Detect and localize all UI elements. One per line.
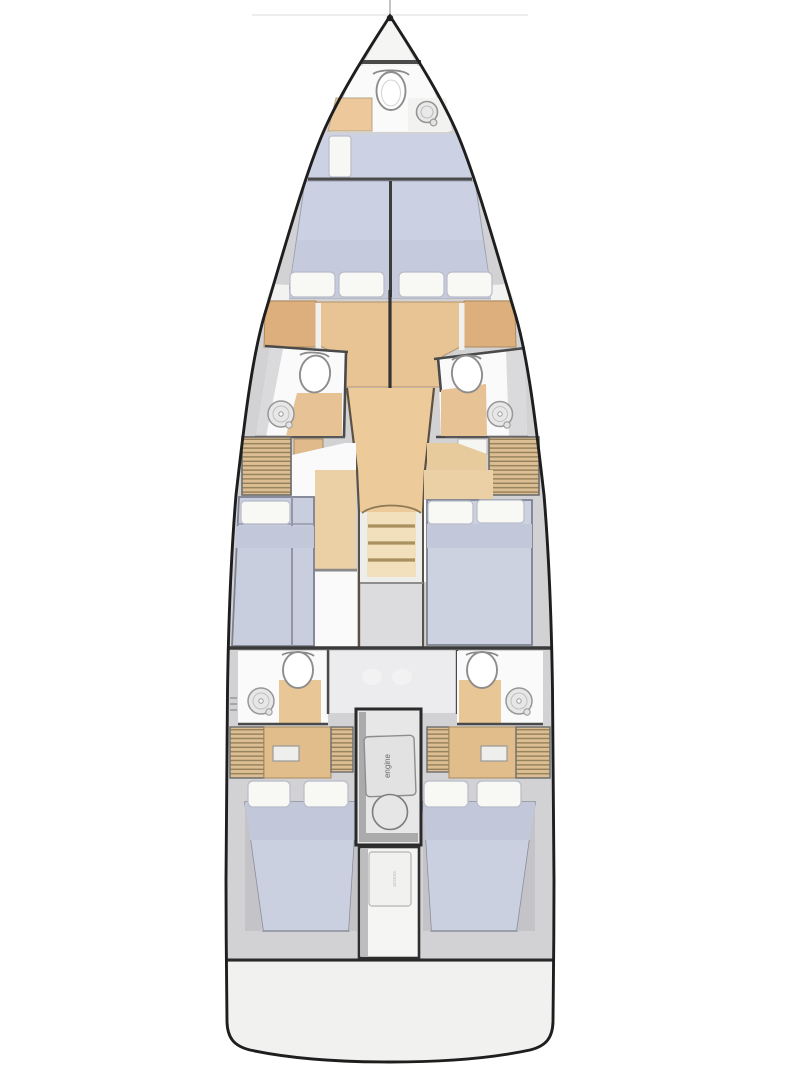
svg-text:engine: engine <box>383 753 392 778</box>
svg-text:access: access <box>392 871 398 887</box>
